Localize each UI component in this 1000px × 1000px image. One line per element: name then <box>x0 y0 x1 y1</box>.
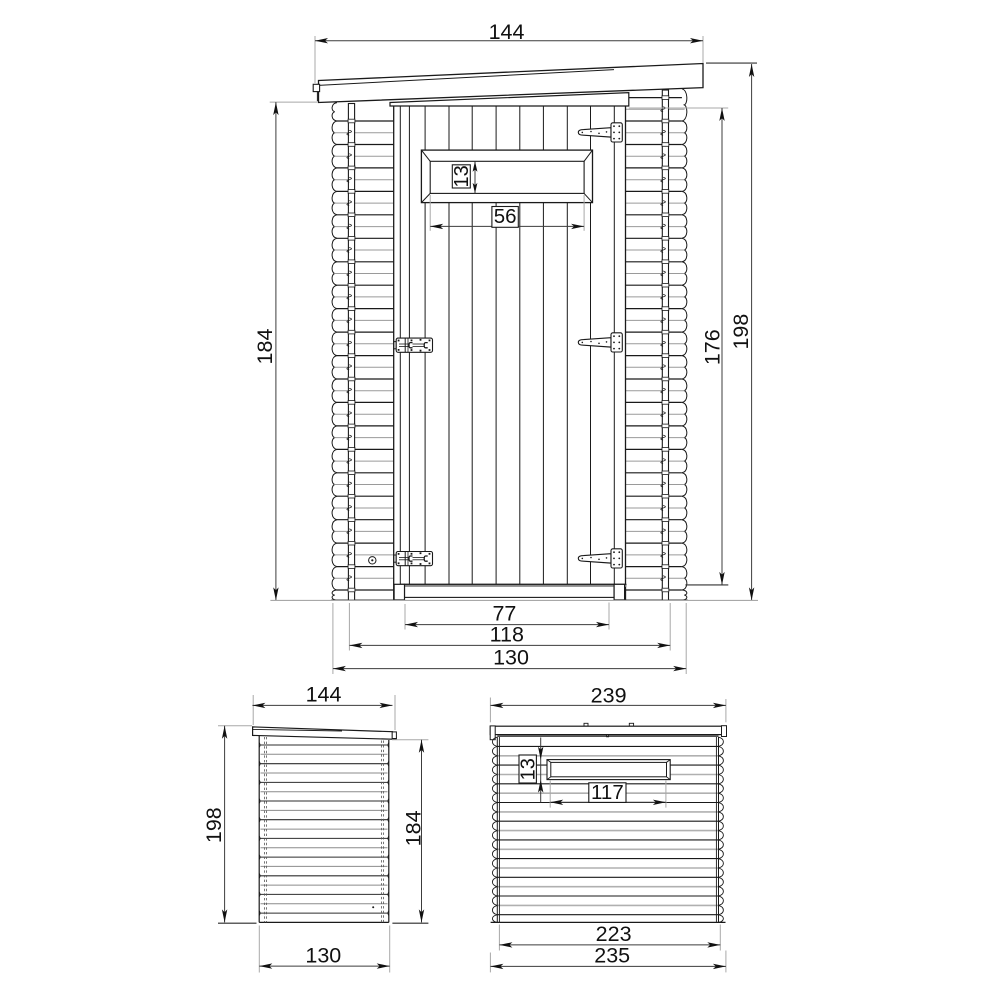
svg-text:144: 144 <box>489 20 525 44</box>
svg-text:117: 117 <box>591 781 624 804</box>
svg-text:184: 184 <box>401 810 425 846</box>
svg-text:239: 239 <box>591 684 627 708</box>
svg-text:13: 13 <box>451 165 473 187</box>
svg-text:176: 176 <box>700 329 724 365</box>
svg-text:130: 130 <box>493 646 529 670</box>
svg-text:118: 118 <box>490 622 524 646</box>
svg-text:13: 13 <box>517 758 539 780</box>
svg-text:56: 56 <box>494 205 517 228</box>
svg-text:184: 184 <box>253 329 277 365</box>
svg-text:223: 223 <box>596 922 632 946</box>
svg-text:198: 198 <box>202 807 226 843</box>
svg-text:144: 144 <box>306 683 342 707</box>
svg-text:235: 235 <box>594 944 630 968</box>
svg-text:198: 198 <box>729 314 753 350</box>
svg-text:130: 130 <box>305 943 341 967</box>
